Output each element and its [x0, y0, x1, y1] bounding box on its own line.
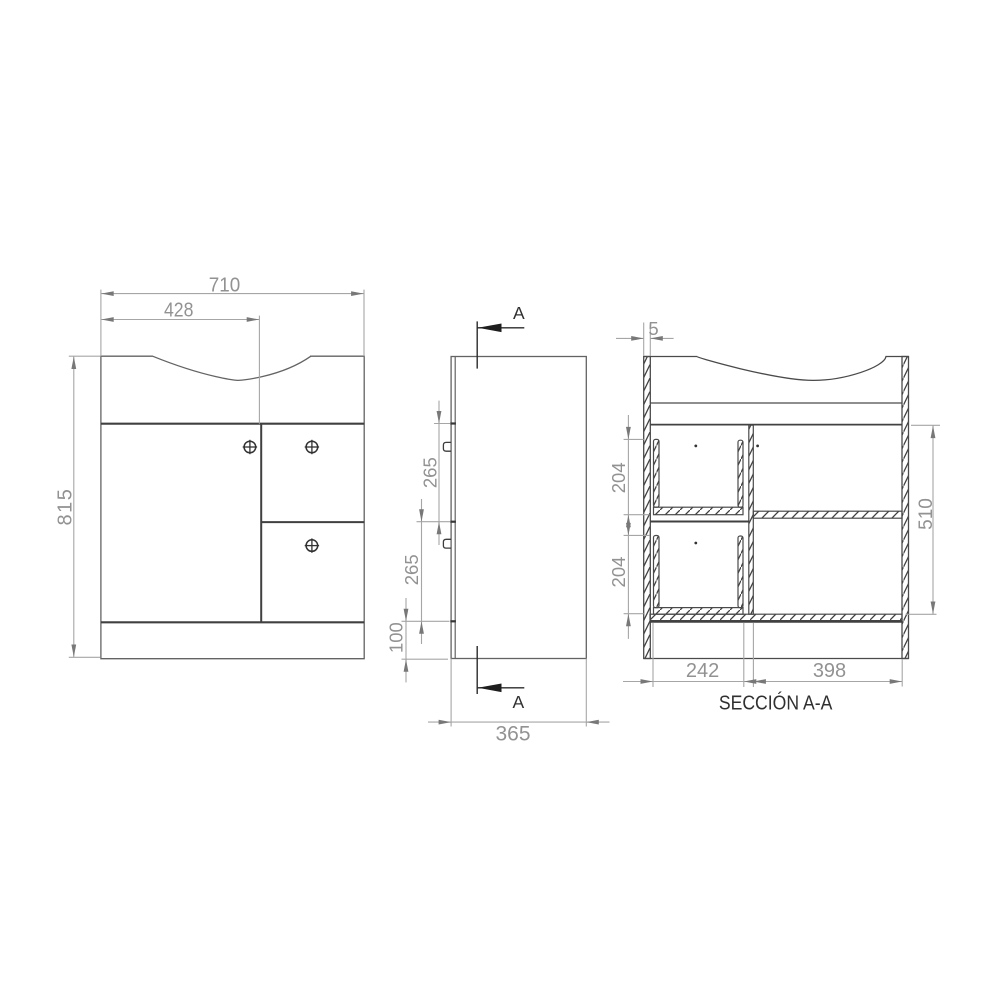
svg-text:100: 100 — [385, 622, 406, 653]
svg-text:265: 265 — [419, 457, 440, 488]
svg-text:365: 365 — [495, 723, 530, 746]
svg-text:SECCIÓN A-A: SECCIÓN A-A — [719, 692, 833, 715]
svg-text:398: 398 — [813, 660, 846, 682]
svg-text:204: 204 — [608, 462, 629, 493]
svg-text:815: 815 — [54, 488, 76, 526]
svg-text:510: 510 — [916, 498, 937, 530]
svg-text:710: 710 — [209, 274, 241, 297]
svg-text:5: 5 — [648, 318, 658, 339]
svg-text:242: 242 — [686, 660, 719, 682]
svg-text:265: 265 — [401, 554, 422, 585]
svg-text:A: A — [513, 303, 525, 323]
svg-text:428: 428 — [164, 300, 194, 322]
svg-text:204: 204 — [608, 557, 629, 588]
svg-text:A: A — [513, 692, 525, 712]
